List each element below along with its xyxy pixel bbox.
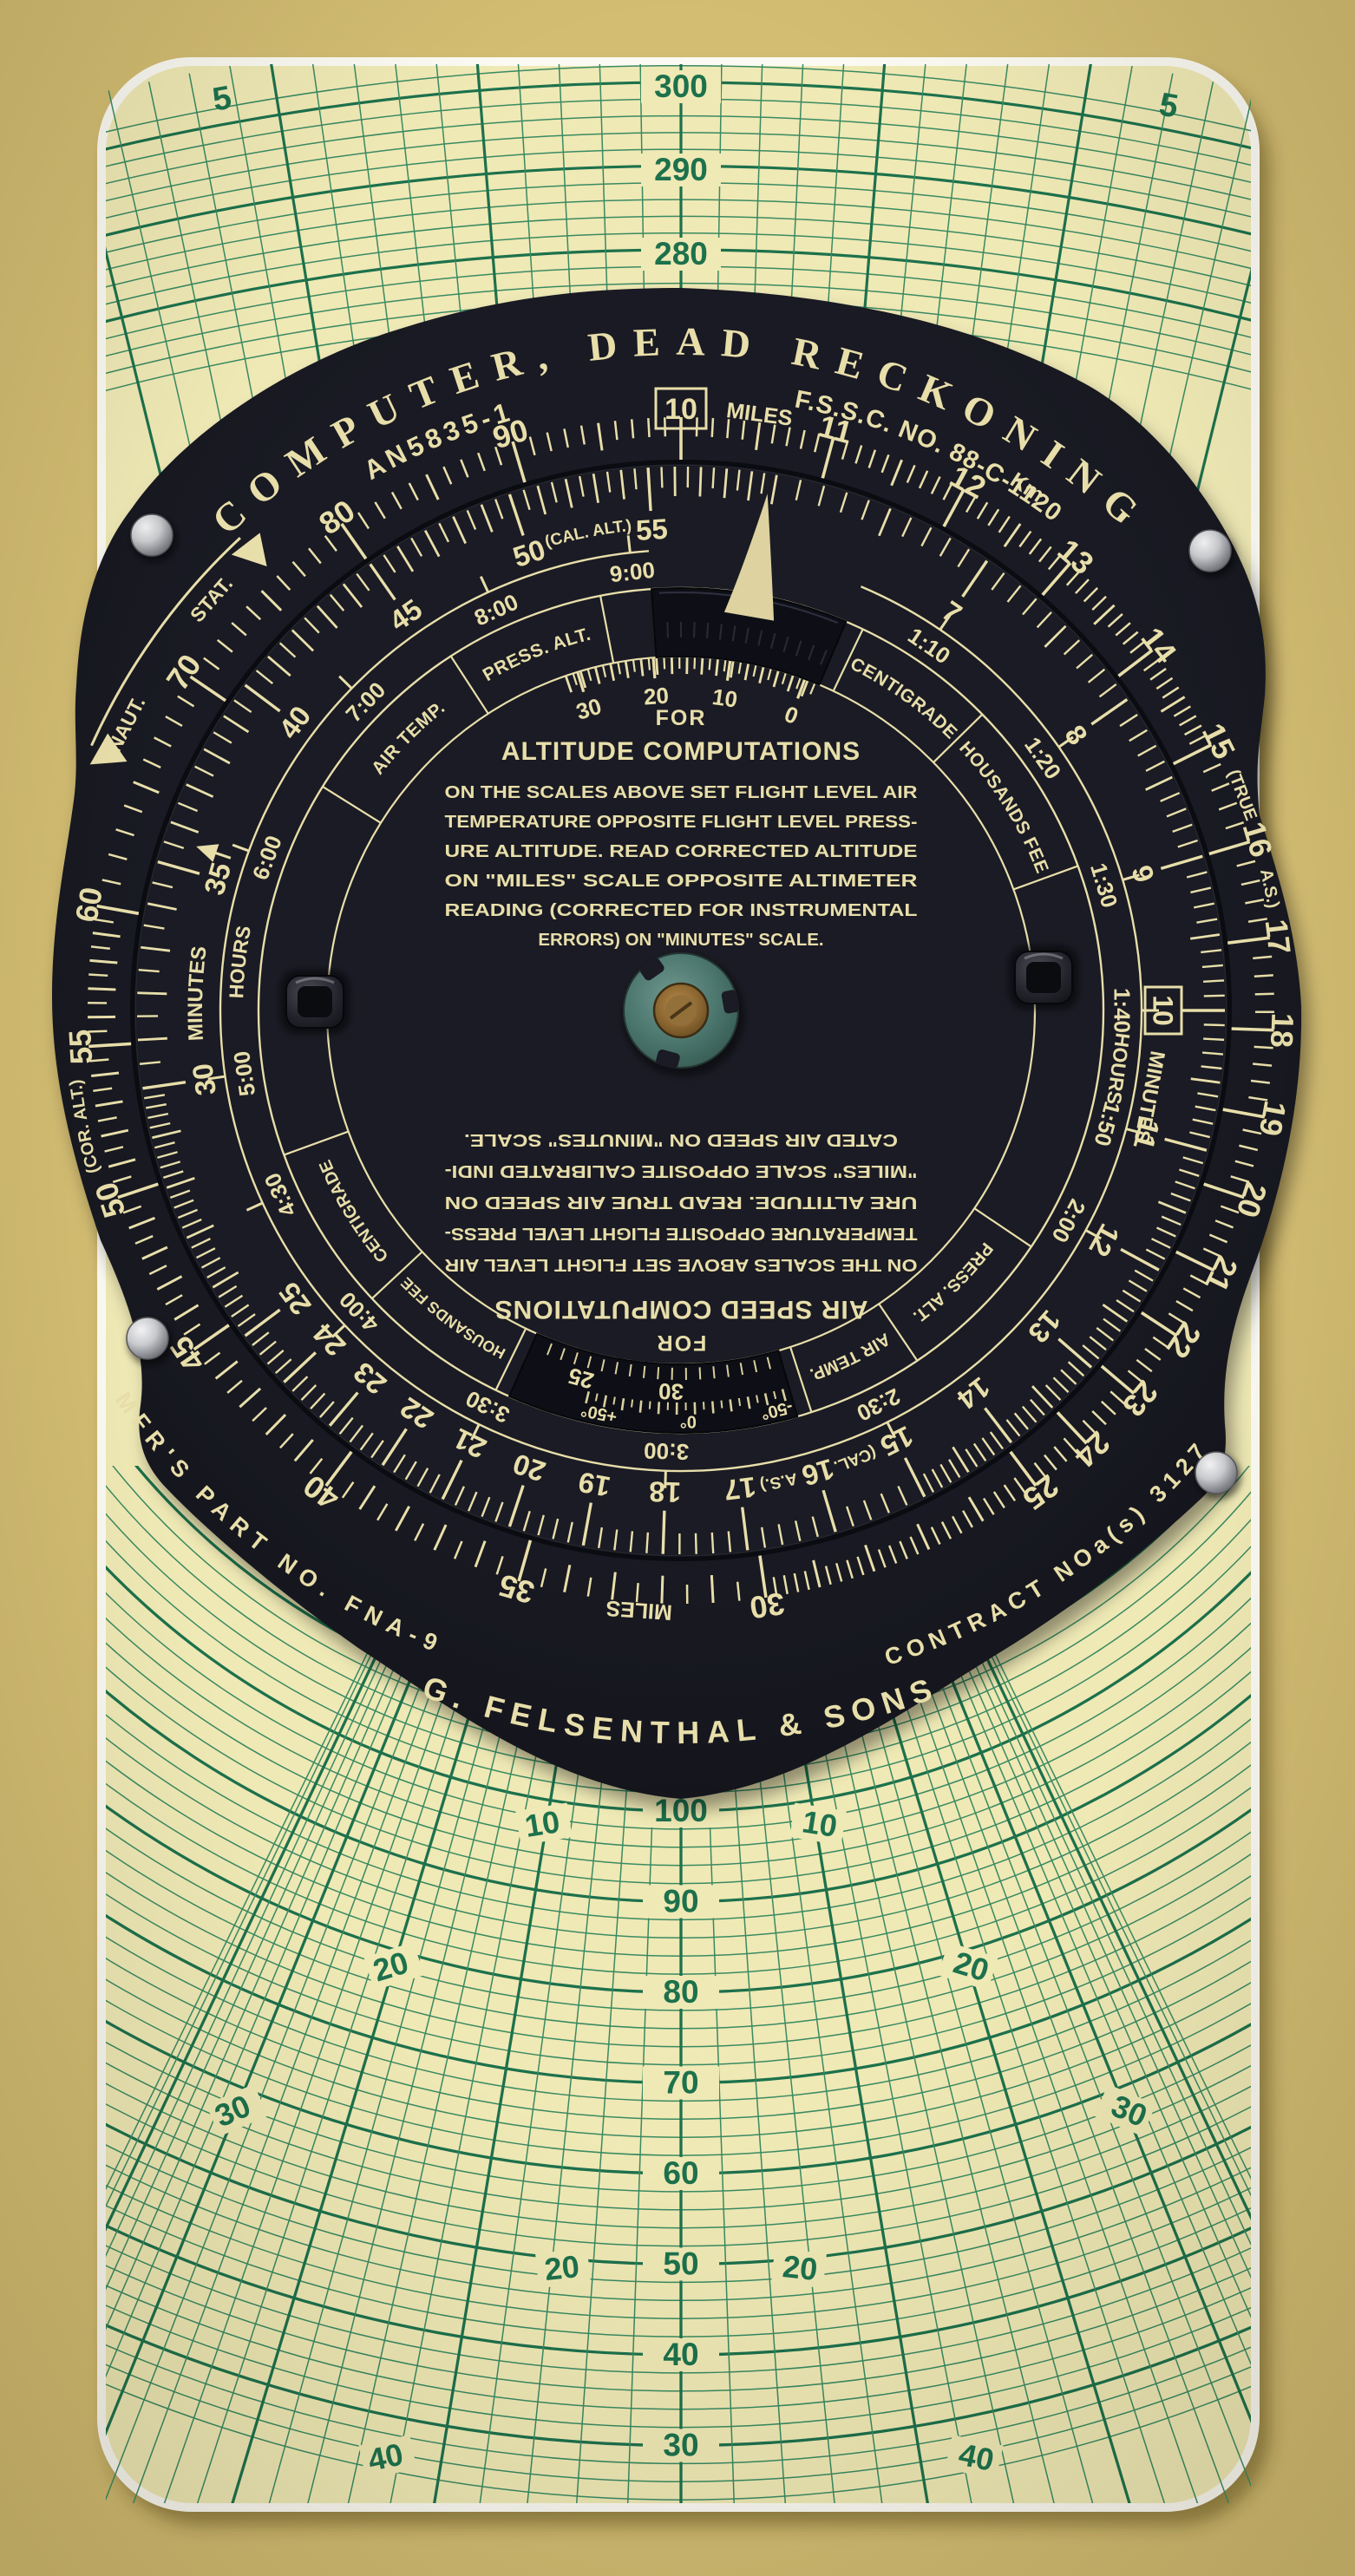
photo-vignette	[0, 0, 1355, 2576]
dead-reckoning-computer-photo: 3002902805510090807060504030101020203030…	[0, 0, 1355, 2576]
scene: 3002902805510090807060504030101020203030…	[0, 0, 1355, 2576]
